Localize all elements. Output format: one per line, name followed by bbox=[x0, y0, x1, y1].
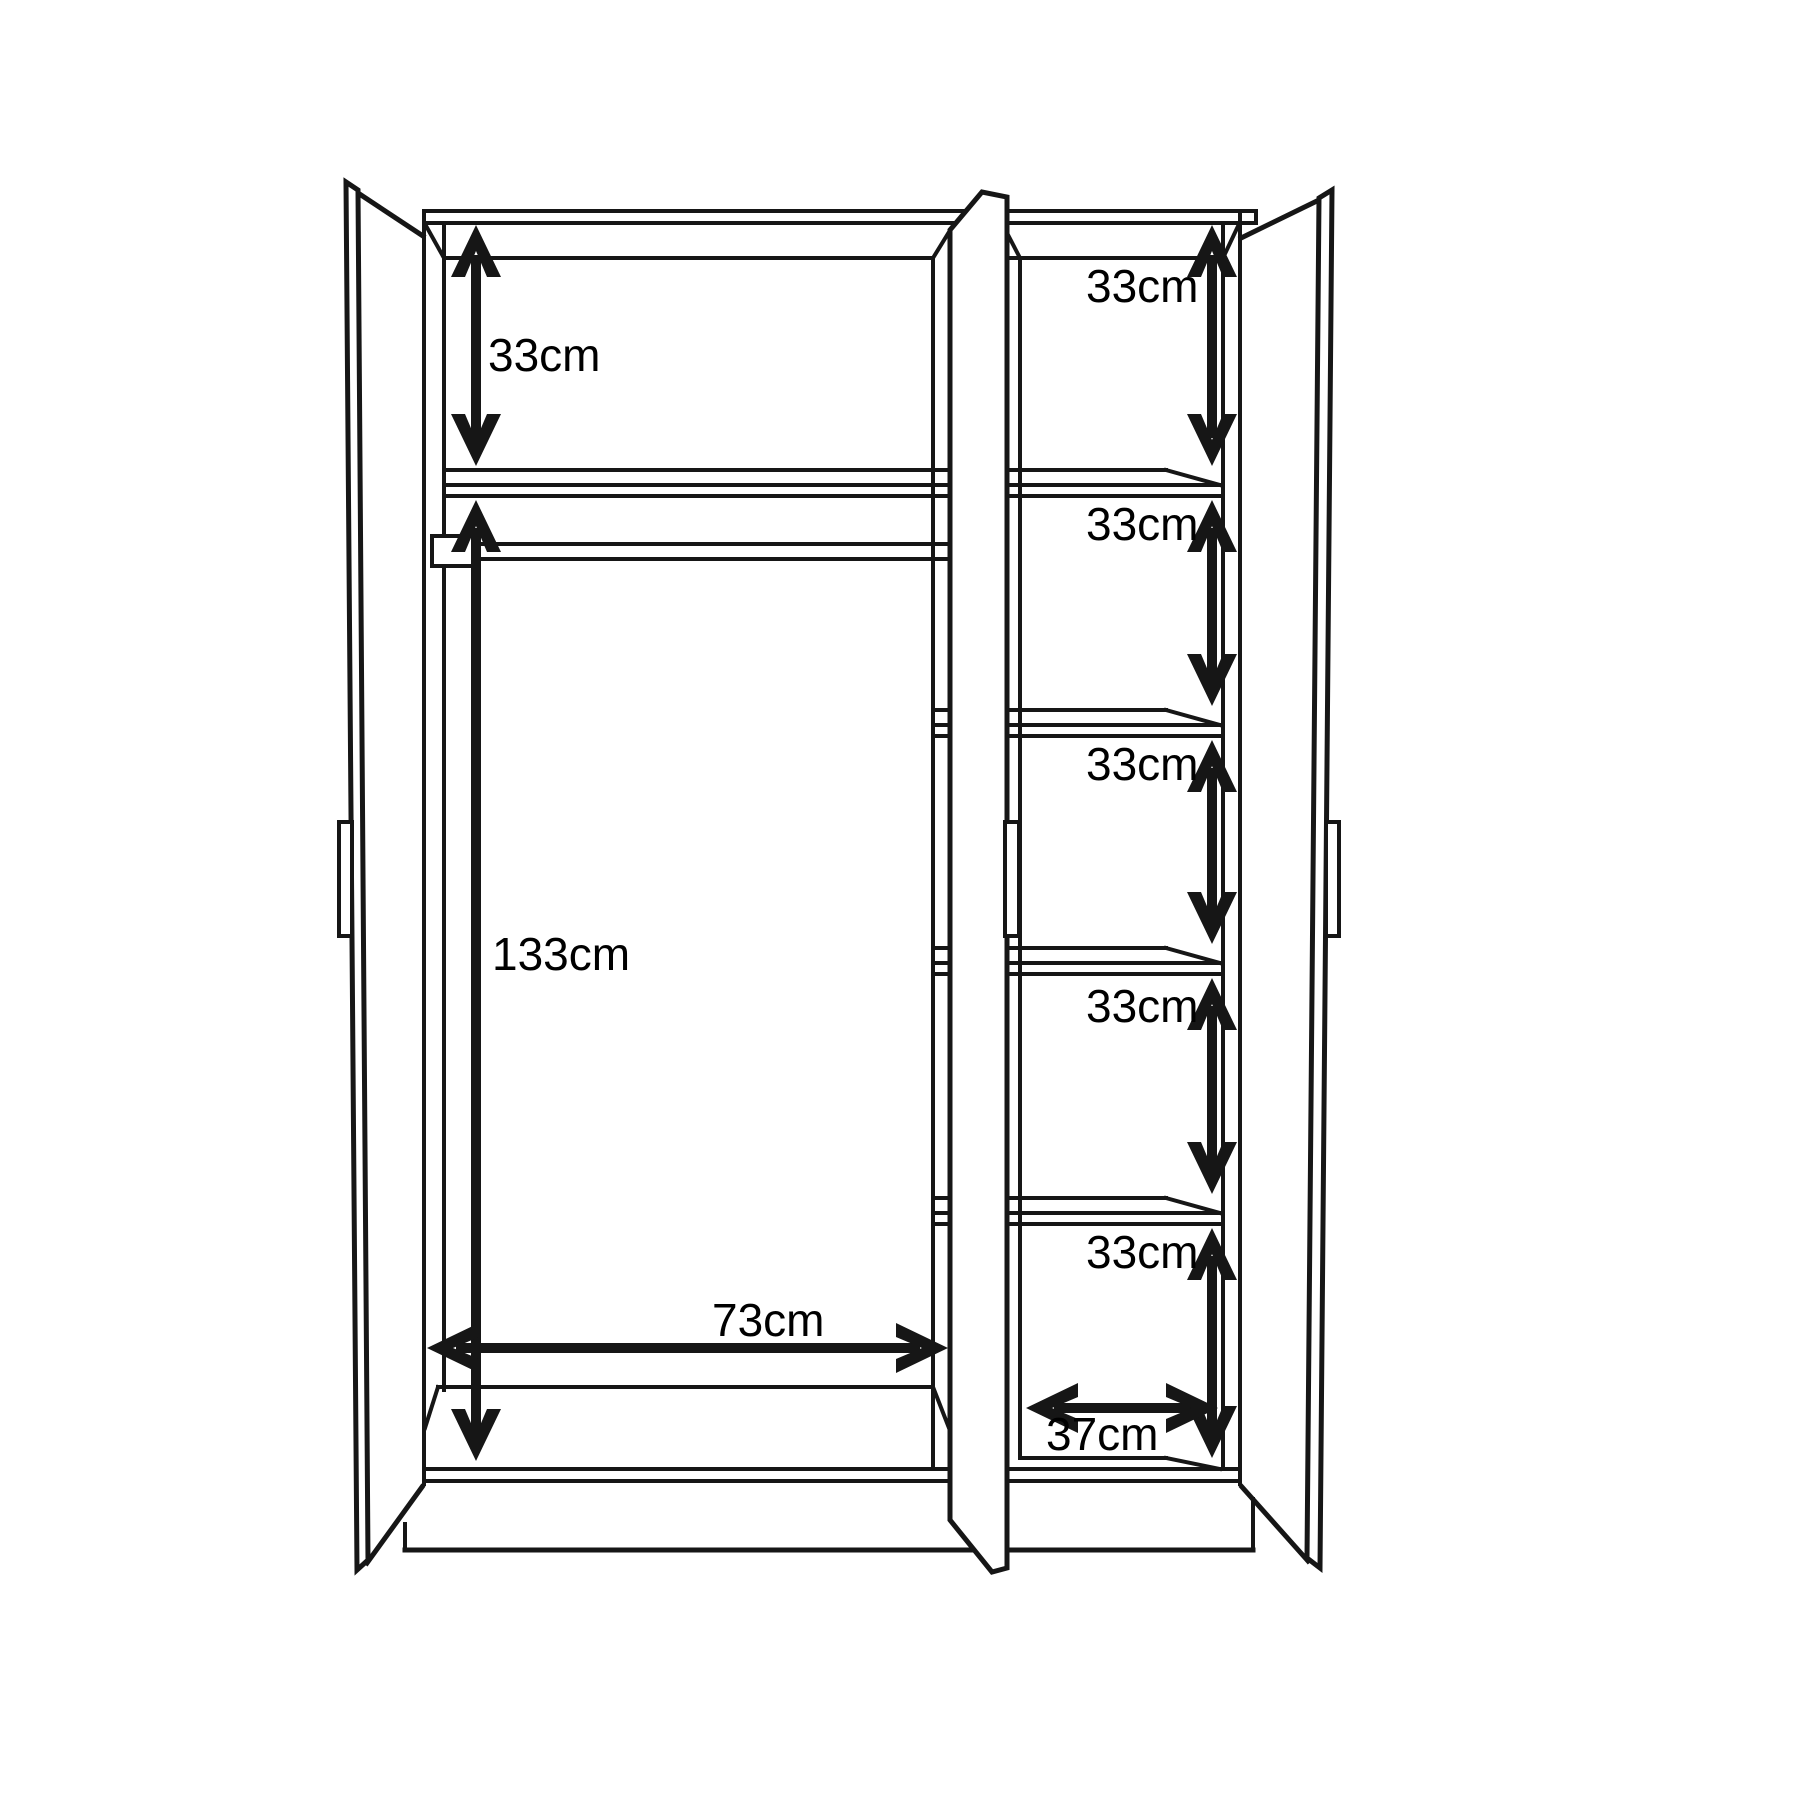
dim-label-left-top: 33cm bbox=[488, 329, 600, 381]
dim-label-shelf-2: 33cm bbox=[1086, 498, 1198, 550]
cabinet-body bbox=[424, 211, 1256, 1484]
right-door-handle bbox=[1326, 822, 1339, 936]
dim-label-right-width: 37cm bbox=[1046, 1408, 1158, 1460]
dim-label-shelf-5: 33cm bbox=[1086, 1226, 1198, 1278]
middle-door bbox=[950, 192, 1019, 1572]
plinth-base bbox=[405, 1499, 1253, 1550]
dim-label-left-width: 73cm bbox=[712, 1294, 824, 1346]
hanging-rail bbox=[432, 536, 950, 566]
middle-door-panel bbox=[950, 192, 1007, 1572]
dim-arrow-hanging-133 bbox=[451, 500, 501, 1461]
dim-label-shelf-4: 33cm bbox=[1086, 980, 1198, 1032]
left-door-handle bbox=[339, 822, 352, 936]
dim-label-shelf-1: 33cm bbox=[1086, 260, 1198, 312]
dim-label-shelf-3: 33cm bbox=[1086, 738, 1198, 790]
dim-label-hanging-height: 133cm bbox=[492, 928, 630, 980]
left-door-top-edge bbox=[358, 193, 423, 236]
dim-arrow-width-73 bbox=[427, 1323, 948, 1373]
wardrobe-dimension-diagram: 33cm 133cm 73cm 33cm 33cm bbox=[0, 0, 1800, 1800]
middle-door-handle bbox=[1005, 822, 1019, 936]
dimension-annotations: 33cm 133cm 73cm 33cm 33cm bbox=[427, 225, 1237, 1461]
left-door bbox=[339, 182, 423, 1570]
right-door bbox=[1241, 190, 1339, 1568]
drawing-canvas: 33cm 133cm 73cm 33cm 33cm bbox=[0, 0, 1800, 1800]
right-door-top-edge bbox=[1241, 200, 1319, 238]
top-shelf bbox=[444, 470, 1223, 496]
